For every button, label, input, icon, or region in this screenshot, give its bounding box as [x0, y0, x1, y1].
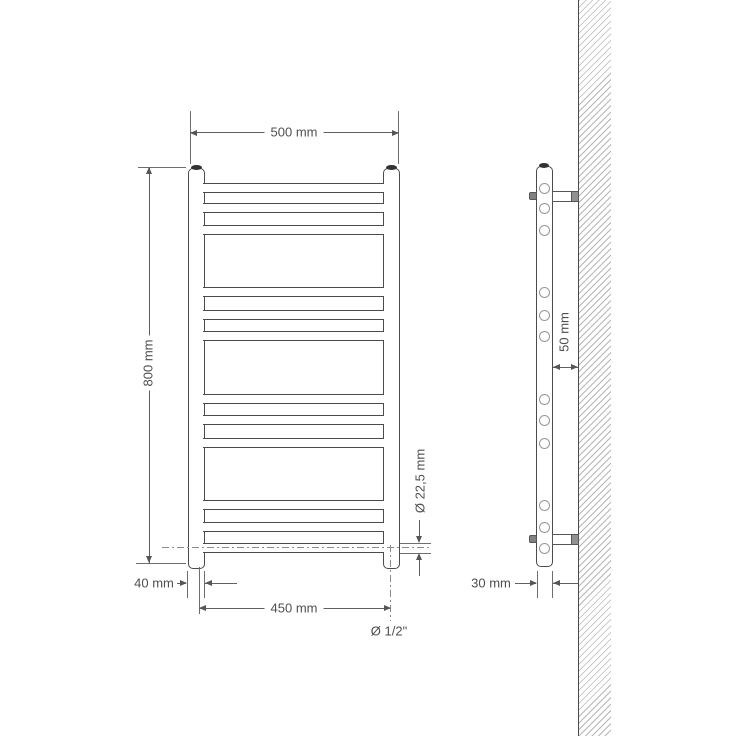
- dim-extension-line: [190, 111, 191, 164]
- arrowhead-left: [199, 605, 206, 611]
- technical-drawing-canvas: 500 mm 800 mm 40 mm 45: [0, 0, 736, 736]
- arrowhead-right: [384, 605, 391, 611]
- arrowhead-left: [553, 580, 560, 586]
- arrowhead-right: [530, 580, 537, 586]
- dim-leader-top: [419, 520, 420, 536]
- right-collector-tube: [383, 168, 400, 569]
- dim-extension-line: [400, 543, 431, 544]
- rung-end-circle: [539, 331, 550, 342]
- bracket-fitting: [529, 535, 537, 543]
- dim-height-label: 800 mm: [141, 336, 156, 391]
- rung: [203, 500, 384, 510]
- dim-depth-label: 30 mm: [469, 576, 513, 591]
- dim-axis-distance-label: 450 mm: [265, 601, 324, 616]
- arrowhead-up: [416, 553, 422, 560]
- rung-end-circle: [539, 394, 550, 405]
- rung: [203, 543, 384, 553]
- dim-width-label: 500 mm: [265, 125, 324, 140]
- connection-size-label: Ø 1/2": [365, 624, 413, 639]
- arrowhead-up: [146, 167, 152, 174]
- wall-bracket-plate: [571, 534, 579, 545]
- dim-extension-line: [398, 111, 399, 164]
- arrowhead-down: [146, 556, 152, 563]
- rung-end-circle: [539, 543, 550, 554]
- rung-end-circle: [539, 287, 550, 298]
- rung: [203, 287, 384, 297]
- rung-end-circle: [539, 183, 550, 194]
- rung: [203, 394, 384, 404]
- wall: [578, 0, 611, 736]
- rung-end-circle: [539, 415, 550, 426]
- arrowhead-right: [180, 580, 187, 586]
- arrowhead-right: [392, 130, 399, 136]
- rung: [203, 438, 384, 448]
- rung-end-circle: [539, 203, 550, 214]
- rung: [203, 522, 384, 532]
- right-tube-top-cap: [386, 165, 397, 170]
- rung-end-circle: [539, 500, 550, 511]
- rung: [203, 225, 384, 235]
- left-collector-tube: [188, 168, 205, 569]
- rung: [203, 415, 384, 425]
- dim-extension-line: [136, 563, 186, 564]
- arrowhead-left: [190, 130, 197, 136]
- dim-extension-line: [187, 571, 188, 598]
- dim-wall-clearance-label: 50 mm: [557, 308, 572, 356]
- arrowhead-left: [553, 364, 560, 370]
- arrowhead-right: [571, 364, 578, 370]
- rung-end-circle: [539, 522, 550, 533]
- rung-end-circle: [539, 225, 550, 236]
- left-tube-top-cap: [191, 165, 202, 170]
- side-tube-top-cap: [539, 163, 549, 168]
- rung: [203, 310, 384, 320]
- bracket-fitting: [529, 192, 537, 200]
- dim-extension-line: [537, 571, 538, 598]
- rung: [203, 331, 384, 341]
- rung: [203, 203, 384, 213]
- dim-collector-width-label: 40 mm: [132, 576, 176, 591]
- dim-rung-diameter-label: Ø 22,5 mm: [413, 445, 428, 517]
- arrowhead-down: [416, 536, 422, 543]
- wall-bracket-plate: [571, 191, 579, 202]
- dim-leader-bottom: [419, 560, 420, 576]
- rung-end-circle: [539, 438, 550, 449]
- rung-end-circle: [539, 310, 550, 321]
- rung: [203, 183, 384, 193]
- arrowhead-left: [205, 580, 212, 586]
